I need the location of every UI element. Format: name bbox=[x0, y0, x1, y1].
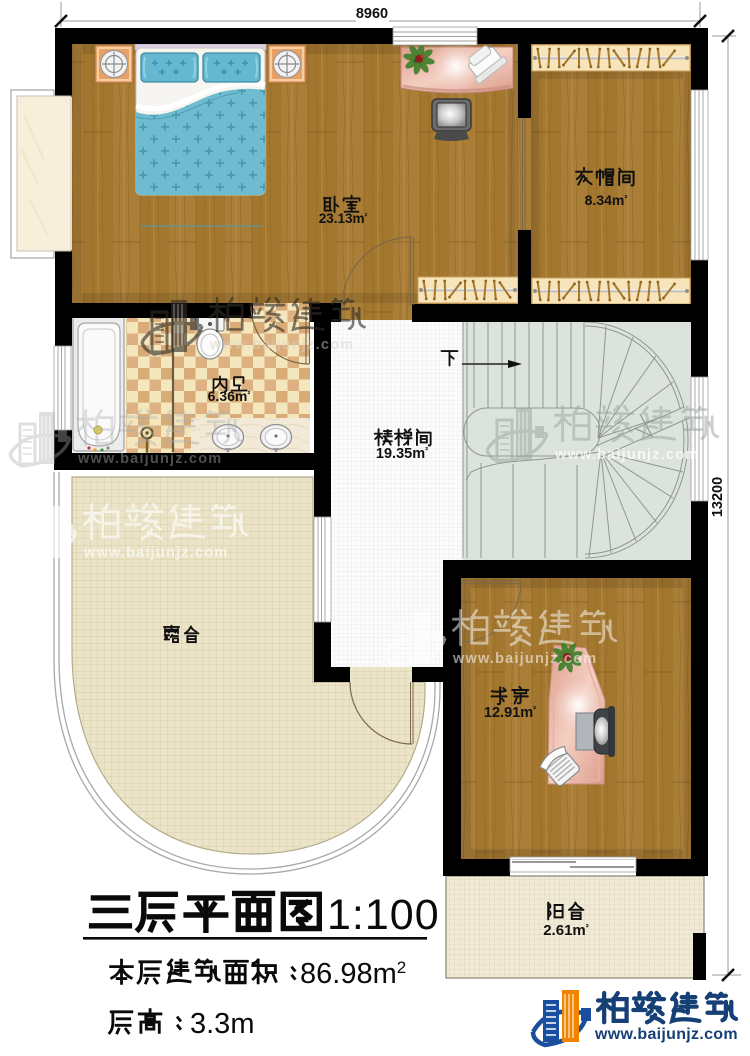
svg-text:www.baijunjz.com: www.baijunjz.com bbox=[452, 651, 597, 667]
svg-text:8.34m²: 8.34m² bbox=[585, 192, 628, 208]
svg-text:2.61m²: 2.61m² bbox=[543, 922, 589, 939]
svg-text:12.91m²: 12.91m² bbox=[484, 704, 536, 721]
svg-text:19.35m²: 19.35m² bbox=[376, 445, 428, 462]
svg-text:23.13m²: 23.13m² bbox=[319, 211, 368, 226]
svg-text:3.3m: 3.3m bbox=[190, 1008, 254, 1040]
svg-text:www.baijunjz.com: www.baijunjz.com bbox=[594, 1026, 738, 1043]
svg-text:www.baijunjz.com: www.baijunjz.com bbox=[554, 447, 699, 463]
svg-text:86.98m2: 86.98m2 bbox=[300, 958, 406, 990]
svg-text:www.baijunjz.com: www.baijunjz.com bbox=[209, 337, 354, 353]
svg-text:www.baijunjz.com: www.baijunjz.com bbox=[83, 545, 228, 561]
svg-text:1:100: 1:100 bbox=[327, 891, 440, 939]
svg-text:13200: 13200 bbox=[710, 477, 726, 517]
svg-text:6.36m²: 6.36m² bbox=[208, 388, 251, 404]
svg-text:www.baijunjz.com: www.baijunjz.com bbox=[77, 451, 222, 467]
svg-text:8960: 8960 bbox=[356, 6, 388, 22]
